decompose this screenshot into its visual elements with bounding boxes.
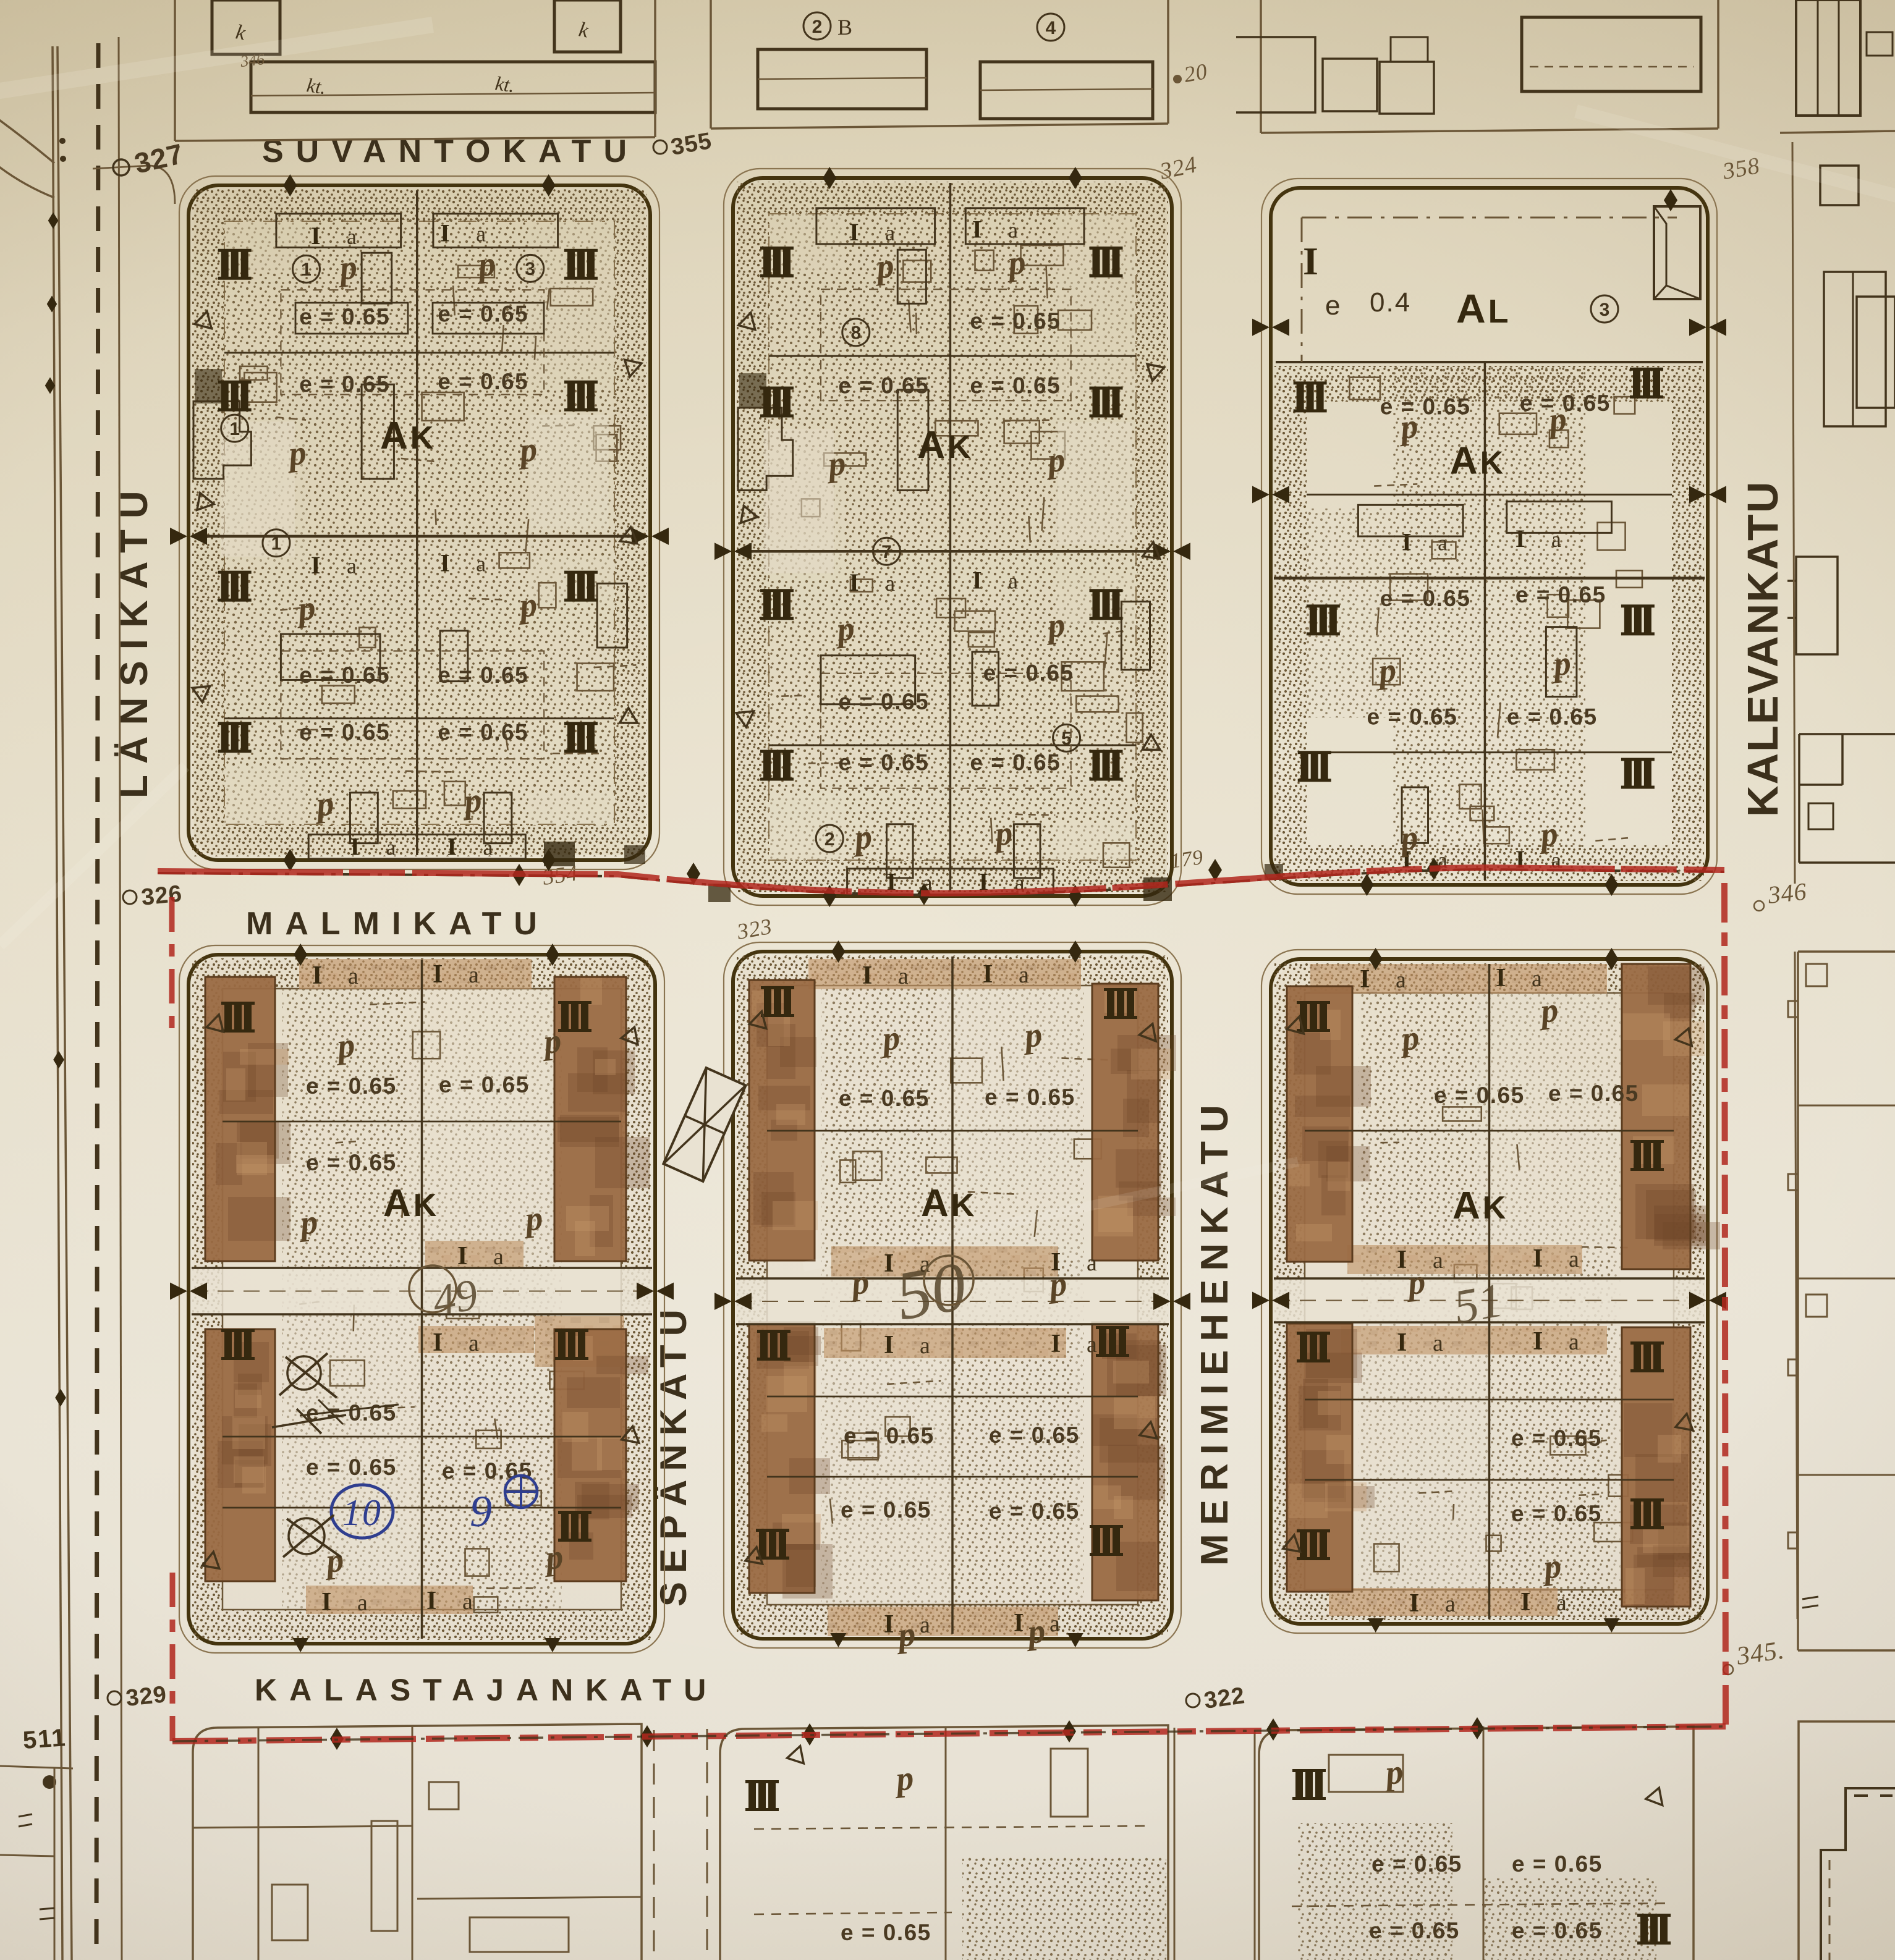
svg-text:329: 329 xyxy=(125,1681,168,1712)
svg-text:e = 0.65: e = 0.65 xyxy=(839,1086,930,1111)
svg-text:e = 0.65: e = 0.65 xyxy=(1512,1918,1603,1943)
svg-text:I: I xyxy=(440,549,450,577)
svg-text:9: 9 xyxy=(470,1487,492,1536)
svg-text:e = 0.65: e = 0.65 xyxy=(838,750,929,775)
svg-text:e = 0.65: e = 0.65 xyxy=(838,689,929,714)
svg-text:I: I xyxy=(1496,964,1506,992)
svg-text:e = 0.65: e = 0.65 xyxy=(299,304,390,329)
svg-text:AK: AK xyxy=(383,1182,439,1225)
svg-text:a: a xyxy=(468,962,479,988)
svg-text:I: I xyxy=(849,218,859,246)
svg-text:a: a xyxy=(885,571,895,596)
svg-text:e = 0.65: e = 0.65 xyxy=(1512,1851,1603,1877)
svg-text:a: a xyxy=(1008,218,1018,242)
svg-text:a: a xyxy=(493,1244,504,1270)
svg-text:I: I xyxy=(1051,1330,1061,1358)
svg-text:5: 5 xyxy=(1061,729,1072,749)
svg-text:e = 0.65: e = 0.65 xyxy=(1511,1426,1602,1451)
svg-text:p: p xyxy=(892,1759,915,1799)
svg-text:AK: AK xyxy=(1450,439,1506,482)
svg-text:e = 0.65: e = 0.65 xyxy=(1380,394,1471,420)
svg-text:3: 3 xyxy=(1600,300,1610,320)
svg-text:4: 4 xyxy=(1046,18,1056,38)
svg-text:e = 0.65: e = 0.65 xyxy=(1434,1083,1525,1108)
svg-text:20: 20 xyxy=(1182,59,1209,87)
svg-text:a: a xyxy=(920,1333,930,1359)
svg-text:e = 0.65: e = 0.65 xyxy=(970,750,1061,775)
svg-text:AK: AK xyxy=(921,1182,977,1225)
svg-text:a: a xyxy=(1087,1332,1097,1358)
svg-text:e = 0.65: e = 0.65 xyxy=(844,1423,935,1448)
svg-text:a: a xyxy=(1433,1248,1443,1274)
svg-text:a: a xyxy=(357,1590,368,1616)
svg-text:a: a xyxy=(1445,1591,1456,1617)
svg-text:p: p xyxy=(1381,1752,1405,1793)
svg-text:0.4: 0.4 xyxy=(1370,287,1411,318)
svg-text:a: a xyxy=(1019,962,1029,988)
svg-text:e = 0.65: e = 0.65 xyxy=(438,662,528,688)
svg-text:a: a xyxy=(920,1612,930,1638)
svg-text:51: 51 xyxy=(1450,1273,1507,1334)
svg-text:kt.: kt. xyxy=(305,74,328,98)
svg-text:e = 0.65: e = 0.65 xyxy=(439,1072,530,1097)
svg-text:3: 3 xyxy=(525,259,535,279)
svg-text:k: k xyxy=(577,18,591,42)
svg-text:a: a xyxy=(1008,569,1018,594)
svg-text:326: 326 xyxy=(140,881,184,911)
svg-text:e = 0.65: e = 0.65 xyxy=(985,1084,1075,1110)
svg-text:I: I xyxy=(849,568,859,596)
svg-text:e: e xyxy=(1325,290,1340,321)
svg-text:AK: AK xyxy=(917,424,973,467)
svg-text:I: I xyxy=(311,222,321,250)
svg-text:323: 323 xyxy=(734,914,774,944)
svg-text:I: I xyxy=(312,961,322,990)
svg-text:I: I xyxy=(983,960,993,989)
svg-text:I: I xyxy=(1533,1327,1543,1356)
svg-text:e = 0.65: e = 0.65 xyxy=(989,1498,1080,1524)
svg-text:322: 322 xyxy=(1202,1683,1247,1714)
svg-text:I: I xyxy=(1397,1328,1407,1357)
svg-text:I: I xyxy=(433,1328,443,1357)
svg-text:e = 0.65: e = 0.65 xyxy=(438,369,528,394)
svg-text:2: 2 xyxy=(812,17,823,37)
svg-text:a: a xyxy=(1049,1611,1060,1637)
svg-text:e = 0.65: e = 0.65 xyxy=(1371,1851,1462,1877)
svg-text:a: a xyxy=(347,554,357,578)
svg-text:I: I xyxy=(457,1242,467,1270)
svg-text:I: I xyxy=(447,832,457,860)
svg-text:e = 0.65: e = 0.65 xyxy=(983,660,1074,685)
svg-text:10: 10 xyxy=(342,1492,382,1533)
svg-text:355: 355 xyxy=(669,128,714,161)
svg-text:a: a xyxy=(1569,1246,1579,1272)
svg-text:e = 0.65: e = 0.65 xyxy=(438,302,528,327)
svg-text:I: I xyxy=(426,1587,436,1615)
svg-text:a: a xyxy=(476,222,486,247)
svg-text:a: a xyxy=(347,224,357,249)
svg-text:50: 50 xyxy=(891,1248,972,1335)
svg-text:e = 0.65: e = 0.65 xyxy=(306,1073,397,1099)
svg-text:I: I xyxy=(440,219,450,247)
svg-text:e = 0.65: e = 0.65 xyxy=(970,373,1061,399)
svg-text:327: 327 xyxy=(132,137,187,180)
svg-text:I: I xyxy=(1520,1588,1530,1616)
svg-text:SEPÄNKATU: SEPÄNKATU xyxy=(653,1301,694,1607)
svg-text:e = 0.65: e = 0.65 xyxy=(306,1455,397,1480)
svg-text:511: 511 xyxy=(22,1724,67,1754)
svg-text:MALMIKATU: MALMIKATU xyxy=(246,906,549,942)
svg-text:B: B xyxy=(837,15,852,40)
svg-text:e = 0.65: e = 0.65 xyxy=(442,1458,533,1484)
svg-text:e = 0.65: e = 0.65 xyxy=(299,720,390,745)
svg-text:e = 0.65: e = 0.65 xyxy=(970,308,1061,334)
svg-text:KALASTAJANKATU: KALASTAJANKATU xyxy=(255,1673,718,1707)
svg-text:AK: AK xyxy=(1452,1185,1508,1227)
svg-text:179: 179 xyxy=(1169,846,1205,873)
svg-text:MERIMIEHENKATU: MERIMIEHENKATU xyxy=(1193,1096,1236,1566)
svg-text:345.: 345. xyxy=(1734,1636,1786,1671)
svg-text:e = 0.65: e = 0.65 xyxy=(438,720,528,745)
svg-text:I: I xyxy=(1533,1244,1543,1273)
svg-text:a: a xyxy=(898,963,909,989)
svg-text:kt.: kt. xyxy=(494,72,516,96)
svg-text:I: I xyxy=(311,551,321,579)
svg-text:k: k xyxy=(234,20,248,44)
svg-text:a: a xyxy=(468,1330,479,1356)
svg-text:1: 1 xyxy=(271,534,282,554)
svg-text:e = 0.65: e = 0.65 xyxy=(1548,1081,1639,1106)
svg-text:a: a xyxy=(386,835,396,860)
svg-text:I: I xyxy=(321,1588,331,1616)
svg-text:e = 0.65: e = 0.65 xyxy=(306,1150,397,1175)
svg-text:I: I xyxy=(884,1610,894,1639)
svg-text:e = 0.65: e = 0.65 xyxy=(989,1422,1080,1448)
svg-text:I: I xyxy=(972,567,982,594)
svg-text:a: a xyxy=(1433,1330,1443,1356)
svg-text:I: I xyxy=(884,1331,894,1359)
svg-text:a: a xyxy=(1396,967,1406,993)
svg-text:I: I xyxy=(1397,1246,1407,1274)
svg-text:a: a xyxy=(476,552,486,577)
svg-text:a: a xyxy=(348,963,358,989)
svg-text:I: I xyxy=(862,961,872,990)
svg-text:e = 0.65: e = 0.65 xyxy=(1380,586,1471,611)
svg-text:I: I xyxy=(1409,1589,1419,1618)
svg-text:a: a xyxy=(483,835,493,860)
svg-text:346: 346 xyxy=(1766,877,1808,909)
svg-text:324: 324 xyxy=(1157,151,1199,185)
svg-text:e = 0.65: e = 0.65 xyxy=(1511,1501,1602,1526)
svg-text:a: a xyxy=(1569,1329,1579,1355)
svg-text:e = 0.65: e = 0.65 xyxy=(841,1497,931,1523)
svg-text:KALEVANKATU: KALEVANKATU xyxy=(1739,481,1787,817)
svg-text:e = 0.65: e = 0.65 xyxy=(299,371,390,397)
svg-text:AL: AL xyxy=(1456,285,1511,331)
svg-text:I: I xyxy=(1516,525,1525,552)
svg-text:2: 2 xyxy=(825,829,835,850)
svg-text:I: I xyxy=(1014,1609,1024,1637)
svg-text:I: I xyxy=(350,832,360,860)
svg-text:a: a xyxy=(1556,1590,1567,1616)
svg-text:I: I xyxy=(433,960,443,989)
svg-text:I: I xyxy=(1360,965,1370,994)
svg-text:e = 0.65: e = 0.65 xyxy=(838,373,929,399)
svg-text:a: a xyxy=(885,221,895,245)
svg-text:7: 7 xyxy=(881,542,892,562)
svg-text:e = 0.65: e = 0.65 xyxy=(841,1920,931,1945)
svg-text:a: a xyxy=(1087,1250,1097,1276)
svg-text:I: I xyxy=(1303,239,1318,283)
svg-text:LÄNSIKATU: LÄNSIKATU xyxy=(113,479,156,798)
svg-text:a: a xyxy=(1551,527,1561,552)
svg-text:e = 0.65: e = 0.65 xyxy=(1516,582,1606,607)
svg-text:1: 1 xyxy=(301,260,312,280)
svg-text:a: a xyxy=(1438,531,1448,555)
svg-text:e = 0.65: e = 0.65 xyxy=(1507,704,1598,730)
svg-text:1: 1 xyxy=(229,419,240,439)
svg-text:a: a xyxy=(462,1589,473,1615)
svg-text:I: I xyxy=(1402,528,1412,556)
svg-text:e = 0.65: e = 0.65 xyxy=(1367,704,1458,730)
svg-text:I: I xyxy=(972,215,982,243)
svg-text:e = 0.65: e = 0.65 xyxy=(299,662,390,688)
svg-text:8: 8 xyxy=(850,323,861,344)
svg-text:a: a xyxy=(1532,966,1542,992)
svg-text:AK: AK xyxy=(380,415,436,457)
svg-text:e = 0.65: e = 0.65 xyxy=(1369,1918,1460,1943)
